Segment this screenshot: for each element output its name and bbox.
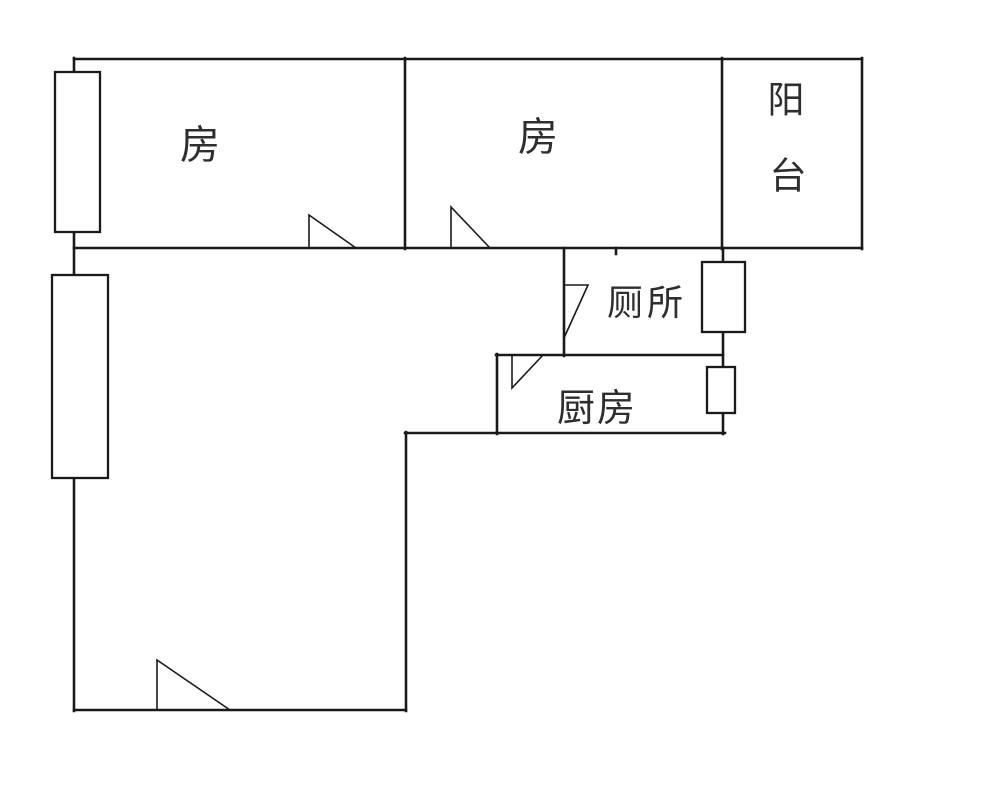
door-swing-bedroom2-icon	[451, 207, 490, 248]
door-swing-bedroom1-icon	[309, 215, 356, 248]
label-kitchen: 厨房	[557, 388, 637, 430]
label-bedroom-2: 房	[518, 115, 558, 160]
window-toilet-icon	[702, 262, 745, 332]
windows	[52, 72, 745, 478]
door-swing-toilet-icon	[564, 285, 588, 338]
floor-plan: 房 房 阳 台 厕所 厨房	[0, 0, 1000, 805]
window-bedroom1-icon	[55, 72, 100, 232]
window-kitchen-icon	[707, 367, 735, 413]
doors	[157, 207, 588, 710]
label-balcony-char-1: 阳	[768, 81, 805, 122]
door-swing-entry-icon	[157, 660, 230, 710]
door-swing-kitchen-icon	[512, 355, 543, 388]
label-toilet: 厕所	[607, 283, 687, 323]
label-bedroom-1: 房	[180, 123, 220, 168]
label-balcony-char-2: 台	[770, 156, 807, 198]
floor-plan-canvas: 房 房 阳 台 厕所 厨房	[0, 0, 1000, 805]
window-living-icon	[52, 275, 108, 478]
